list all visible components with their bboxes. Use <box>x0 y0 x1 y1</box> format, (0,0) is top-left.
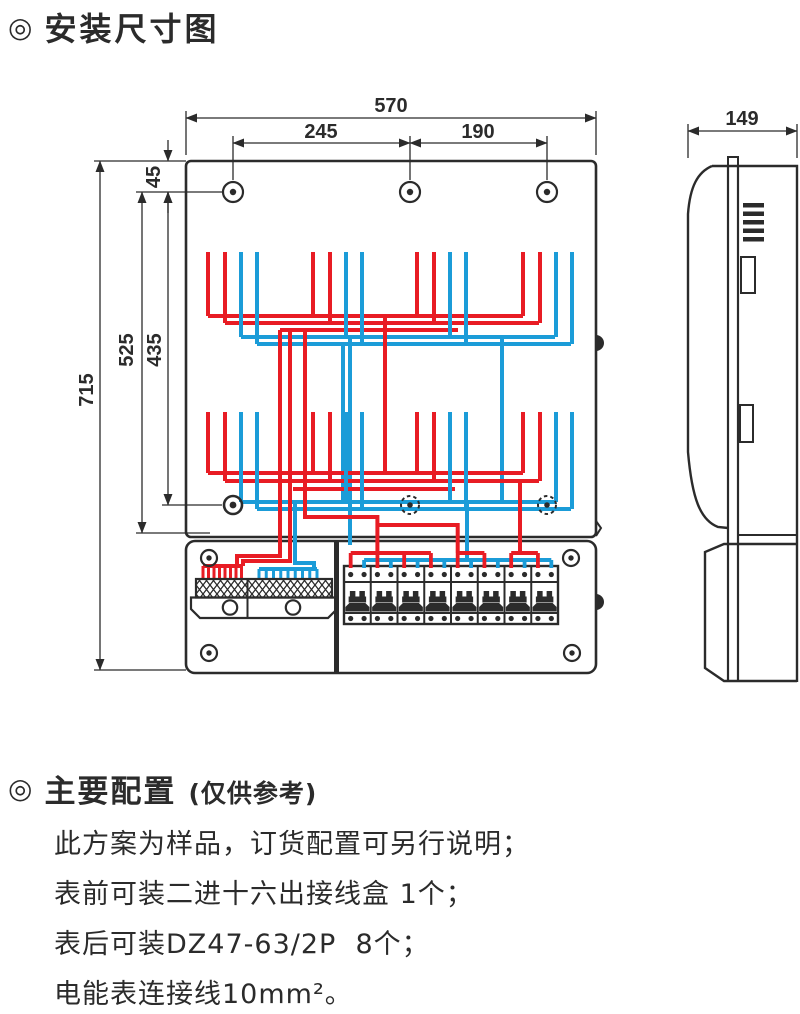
dim-435-label: 435 <box>144 333 166 366</box>
side-window <box>741 257 755 293</box>
config-line: 此方案为样品，订货配置可另行说明； <box>54 820 530 870</box>
screw-icon <box>201 645 217 661</box>
wiring-red <box>203 316 539 566</box>
bullet-icon: ◎ <box>8 772 32 805</box>
side-lower-block <box>705 544 797 681</box>
mounting-hole-hidden <box>538 496 556 514</box>
hinge-icon <box>596 335 604 351</box>
dim-715-label: 715 <box>76 373 98 406</box>
dim-45-label: 45 <box>143 166 165 188</box>
mounting-hole <box>223 182 243 202</box>
mounting-hole <box>537 182 557 202</box>
terminal-hole <box>286 600 300 614</box>
side-window <box>740 405 753 442</box>
config-line: 表前可装二进十六出接线盒 1个； <box>54 870 530 920</box>
config-section-note: (仅供参考) <box>188 774 317 810</box>
terminal-hole <box>223 600 237 614</box>
terminal-comb <box>196 579 332 598</box>
screw-icon <box>563 550 579 566</box>
dim-525-label: 525 <box>116 333 138 366</box>
mounting-hole-hidden <box>401 496 419 514</box>
vent-slats <box>743 203 764 242</box>
mounting-hole <box>224 496 242 514</box>
page: ◎ 安装尺寸图 <box>0 0 800 1014</box>
config-text-block: 此方案为样品，订货配置可另行说明； 表前可装二进十六出接线盒 1个； 表后可装D… <box>54 820 530 1014</box>
hinge-icon <box>596 594 604 610</box>
breaker-array <box>344 566 558 624</box>
dim-190-label: 190 <box>461 121 494 143</box>
side-top-tab <box>728 157 738 166</box>
side-body <box>712 166 797 682</box>
config-section-title: 主要配置 <box>44 766 176 811</box>
installation-diagram-svg: 570 245 190 45 435 525 715 <box>0 0 800 762</box>
dim-570-label: 570 <box>374 95 407 117</box>
dim-245-label: 245 <box>304 121 337 143</box>
breaker-units <box>345 566 556 624</box>
config-line: 电能表连接线10mm²。 <box>54 970 530 1014</box>
dim-149-label: 149 <box>725 108 758 130</box>
side-door-profile <box>688 166 728 528</box>
mounting-hole <box>400 182 420 202</box>
terminal-base <box>191 598 337 619</box>
side-view <box>688 157 797 682</box>
meter-wire-stubs <box>208 252 572 509</box>
mounting-holes-lower <box>224 496 556 514</box>
screw-icon <box>201 550 217 566</box>
config-section-heading: ◎ 主要配置 (仅供参考) <box>8 766 317 811</box>
mounting-holes-top <box>223 182 557 202</box>
config-line: 表后可装DZ47-63/2P 8个； <box>54 920 530 970</box>
screw-icon <box>564 645 580 661</box>
terminal-block <box>191 579 337 618</box>
